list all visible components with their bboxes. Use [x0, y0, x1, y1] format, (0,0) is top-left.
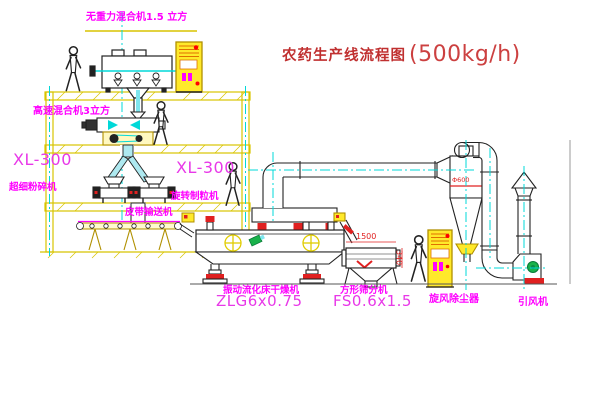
belt-conveyor [77, 222, 182, 251]
indicator-light [446, 234, 450, 238]
title-chinese: 农药生产线流程图 [282, 44, 406, 65]
drawing-title: 农药生产线流程图 (500kg/h) [282, 42, 521, 67]
bucket-elevator-cabinet [176, 42, 202, 92]
crusher-machine [93, 177, 135, 203]
worker-figure [411, 236, 426, 281]
downcomer-duct [479, 143, 513, 279]
square-sieve [334, 213, 402, 287]
worker-figure [226, 163, 240, 206]
title-capacity: (500kg/h) [409, 42, 521, 67]
exhaust-duct [252, 156, 452, 230]
indicator-light [446, 265, 450, 269]
granulator-machine [133, 177, 175, 203]
discharge-chute [130, 203, 146, 223]
indicator-light [194, 45, 198, 49]
y-chute [106, 145, 150, 182]
indicator-light [196, 82, 200, 86]
dryer-infeed [180, 213, 194, 237]
dryer-support [203, 264, 324, 283]
fluid-bed-dryer [196, 216, 344, 283]
process-flow-drawing: 农药生产线流程图 (500kg/h) 无重力混合机1.5 立方 高速混合机3立方… [0, 0, 600, 403]
control-cabinet [426, 230, 454, 287]
cyclone-discharge [456, 244, 478, 254]
high-speed-mixer [82, 112, 165, 145]
induced-draft-fan [512, 172, 544, 284]
gravity-free-mixer [90, 50, 184, 115]
worker-figure [66, 47, 80, 91]
